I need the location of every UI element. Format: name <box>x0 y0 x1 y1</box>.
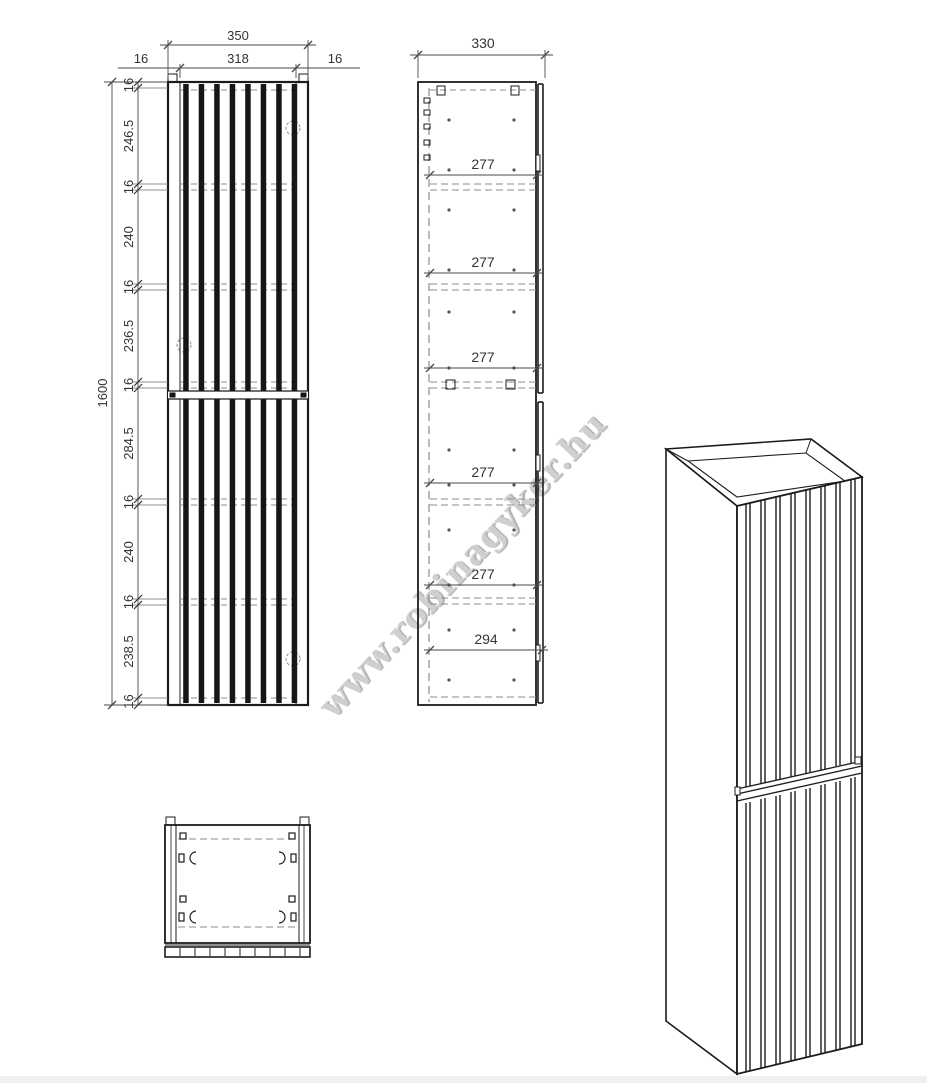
side-hanger-details <box>424 86 536 160</box>
plan-view <box>165 817 310 957</box>
front-door-slats-lower <box>183 399 297 703</box>
drawing-page: www.robinagyker.hu <box>0 0 927 1083</box>
page-bottom-edge <box>0 1076 927 1083</box>
shelf-depth-5: 294 <box>474 631 498 647</box>
front-door-gap <box>168 391 308 399</box>
side-view-dimension-labels: 330 277 277 277 277 277 294 <box>471 35 498 647</box>
front-mount-brackets <box>168 74 308 82</box>
dim-width-total: 350 <box>227 28 249 43</box>
shelf-depth-3: 277 <box>471 464 495 480</box>
shelf-depth-4: 277 <box>471 566 495 582</box>
dim-height-total: 1600 <box>95 379 110 408</box>
side-door-strip <box>536 84 543 703</box>
chain-dim-3: 240 <box>121 226 136 248</box>
chain-dim-11: 238.5 <box>121 635 136 668</box>
dim-wall-left: 16 <box>134 51 148 66</box>
chain-dim-9: 240 <box>121 541 136 563</box>
plan-door-front <box>165 945 310 957</box>
dim-wall-right: 16 <box>328 51 342 66</box>
shelf-depth-2: 277 <box>471 349 495 365</box>
chain-dim-4: 16 <box>121 280 136 294</box>
technical-drawing-svg: 350 318 16 16 1600 16 246.5 16 240 16 23… <box>0 0 927 1083</box>
front-view <box>168 74 308 705</box>
chain-dim-0: 16 <box>121 78 136 92</box>
chain-dim-2: 16 <box>121 180 136 194</box>
front-door-slats-upper <box>183 84 297 391</box>
dim-depth-total: 330 <box>471 35 495 51</box>
chain-dim-10: 16 <box>121 595 136 609</box>
chain-dim-1: 246.5 <box>121 120 136 153</box>
chain-dim-8: 16 <box>121 495 136 509</box>
chain-dim-5: 236.5 <box>121 320 136 353</box>
side-screw-marks <box>447 118 515 681</box>
chain-dim-12: 16 <box>121 694 136 708</box>
shelf-depth-0: 277 <box>471 156 495 172</box>
dim-width-inner: 318 <box>227 51 249 66</box>
chain-dim-7: 284.5 <box>121 427 136 460</box>
iso-side-panel <box>666 449 737 1074</box>
plan-carcass-outline <box>165 825 310 943</box>
chain-dim-6: 16 <box>121 378 136 392</box>
plan-hinge-cups <box>179 833 296 923</box>
shelf-depth-1: 277 <box>471 254 495 270</box>
iso-view <box>666 439 862 1074</box>
